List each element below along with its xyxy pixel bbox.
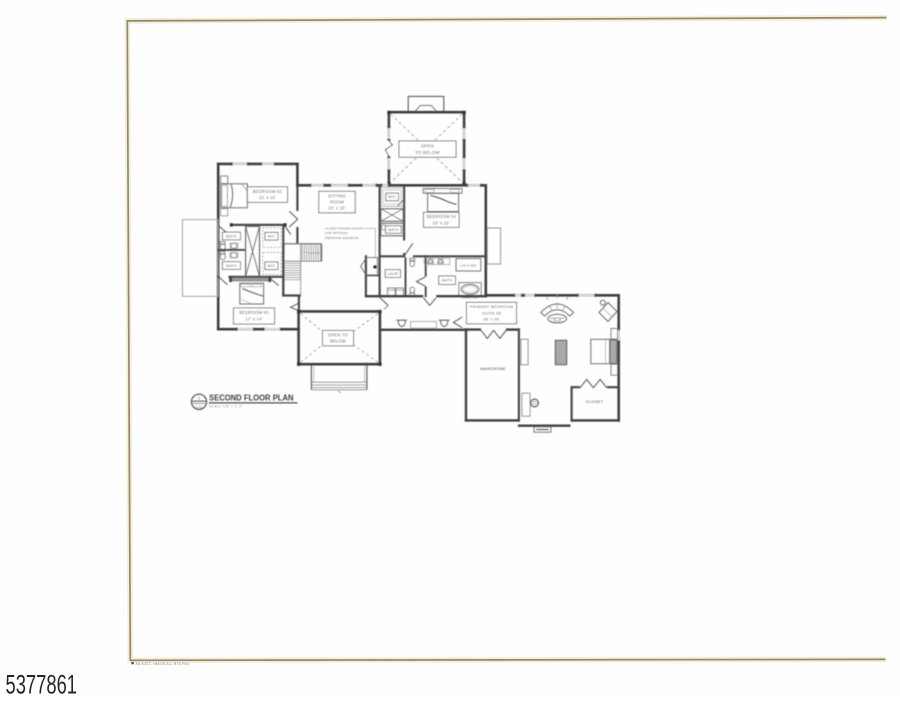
svg-text:SUITE 05: SUITE 05 (482, 310, 502, 315)
svg-text:BEDROOM 02: BEDROOM 02 (253, 189, 283, 194)
svg-text:UP 14R: UP 14R (310, 251, 321, 255)
svg-text:BEDROOM 04: BEDROOM 04 (427, 214, 457, 219)
svg-text:17' x 14': 17' x 14' (245, 317, 262, 322)
svg-text:WIC: WIC (267, 264, 275, 268)
svg-text:SITTING: SITTING (328, 193, 346, 198)
svg-text:2: 2 (198, 397, 200, 401)
svg-text:AN KATZ. IMAGE ALL RTS RSV: AN KATZ. IMAGE ALL RTS RSV (136, 662, 191, 666)
svg-text:LAUN: LAUN (387, 272, 398, 276)
svg-text:TO BELOW: TO BELOW (415, 150, 440, 155)
svg-text:5377861: 5377861 (6, 670, 78, 696)
svg-text:A-201: A-201 (196, 405, 203, 409)
svg-text:BATH: BATH (442, 279, 453, 283)
svg-text:OPEN TO: OPEN TO (328, 332, 348, 337)
svg-text:HIS & HER: HIS & HER (461, 263, 477, 267)
svg-text:SCALE 1/8" = 1'-0": SCALE 1/8" = 1'-0" (209, 404, 243, 408)
svg-text:22' x 15': 22' x 15' (259, 195, 276, 200)
svg-text:22' x 22': 22' x 22' (433, 220, 450, 225)
svg-text:28' x 26': 28' x 26' (483, 317, 500, 322)
svg-text:BELOW: BELOW (330, 339, 346, 344)
svg-text:BATH: BATH (226, 234, 237, 238)
svg-text:BEDROOM 03: BEDROOM 03 (239, 310, 269, 315)
svg-text:OPEN: OPEN (421, 143, 434, 148)
svg-text:PRIMARY BEDROOM: PRIMARY BEDROOM (470, 304, 514, 309)
svg-text:PERSONAL ELEVATOR: PERSONAL ELEVATOR (325, 236, 359, 240)
svg-text:WIC: WIC (388, 195, 396, 199)
svg-text:CLOSET SHOWN OUTLET: CLOSET SHOWN OUTLET (325, 227, 363, 231)
svg-text:FOR OPTIONAL: FOR OPTIONAL (325, 231, 348, 235)
svg-text:CLOSET: CLOSET (586, 399, 604, 404)
svg-text:ROOM: ROOM (330, 199, 344, 204)
svg-text:WARDROBE: WARDROBE (480, 366, 506, 371)
svg-text:22' x 15': 22' x 15' (328, 206, 345, 211)
svg-text:BATH: BATH (388, 228, 399, 232)
svg-text:WIC: WIC (267, 234, 275, 238)
svg-text:SECOND FLOOR PLAN: SECOND FLOOR PLAN (209, 393, 294, 403)
svg-text:BATH: BATH (226, 264, 237, 268)
